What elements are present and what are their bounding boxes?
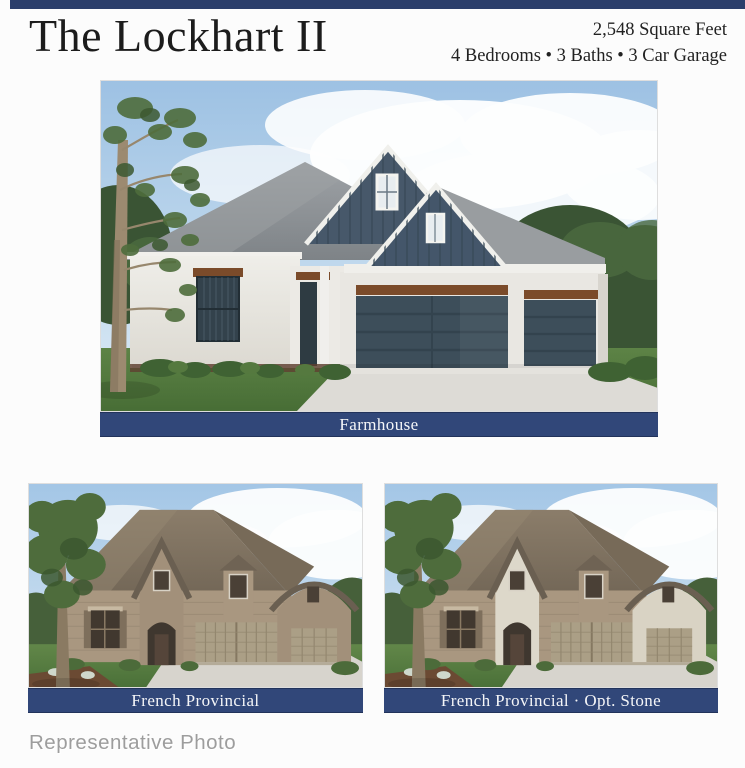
garage-door-single	[524, 300, 596, 366]
caption-french-provincial: French Provincial	[28, 688, 363, 713]
porch-post	[320, 266, 329, 368]
elevation-figure-french-provincial-stone: French Provincial · Opt. Stone	[384, 483, 718, 713]
plan-title: The Lockhart II	[29, 12, 328, 60]
garage-door-double	[356, 296, 508, 368]
bed-bath-garage-text: 4 Bedrooms • 3 Baths • 3 Car Garage	[451, 43, 727, 69]
elevation-figure-french-provincial: French Provincial	[28, 483, 363, 713]
french-provincial-rendering-image	[28, 483, 363, 688]
flyer-page: The Lockhart II 2,548 Square Feet 4 Bedr…	[0, 0, 745, 768]
top-accent-bar	[10, 0, 745, 9]
caption-french-provincial-stone: French Provincial · Opt. Stone	[384, 688, 718, 713]
caption-farmhouse: Farmhouse	[100, 412, 658, 437]
farmhouse-rendering-image	[100, 80, 658, 412]
elevation-figure-farmhouse: Farmhouse	[100, 80, 658, 437]
french-provincial-stone-rendering-image	[384, 483, 718, 688]
front-door	[300, 282, 317, 366]
plan-specs: 2,548 Square Feet 4 Bedrooms • 3 Baths •…	[451, 17, 727, 70]
representative-photo-watermark: Representative Photo	[29, 731, 236, 755]
square-feet-text: 2,548 Square Feet	[451, 17, 727, 43]
front-window	[197, 277, 239, 341]
